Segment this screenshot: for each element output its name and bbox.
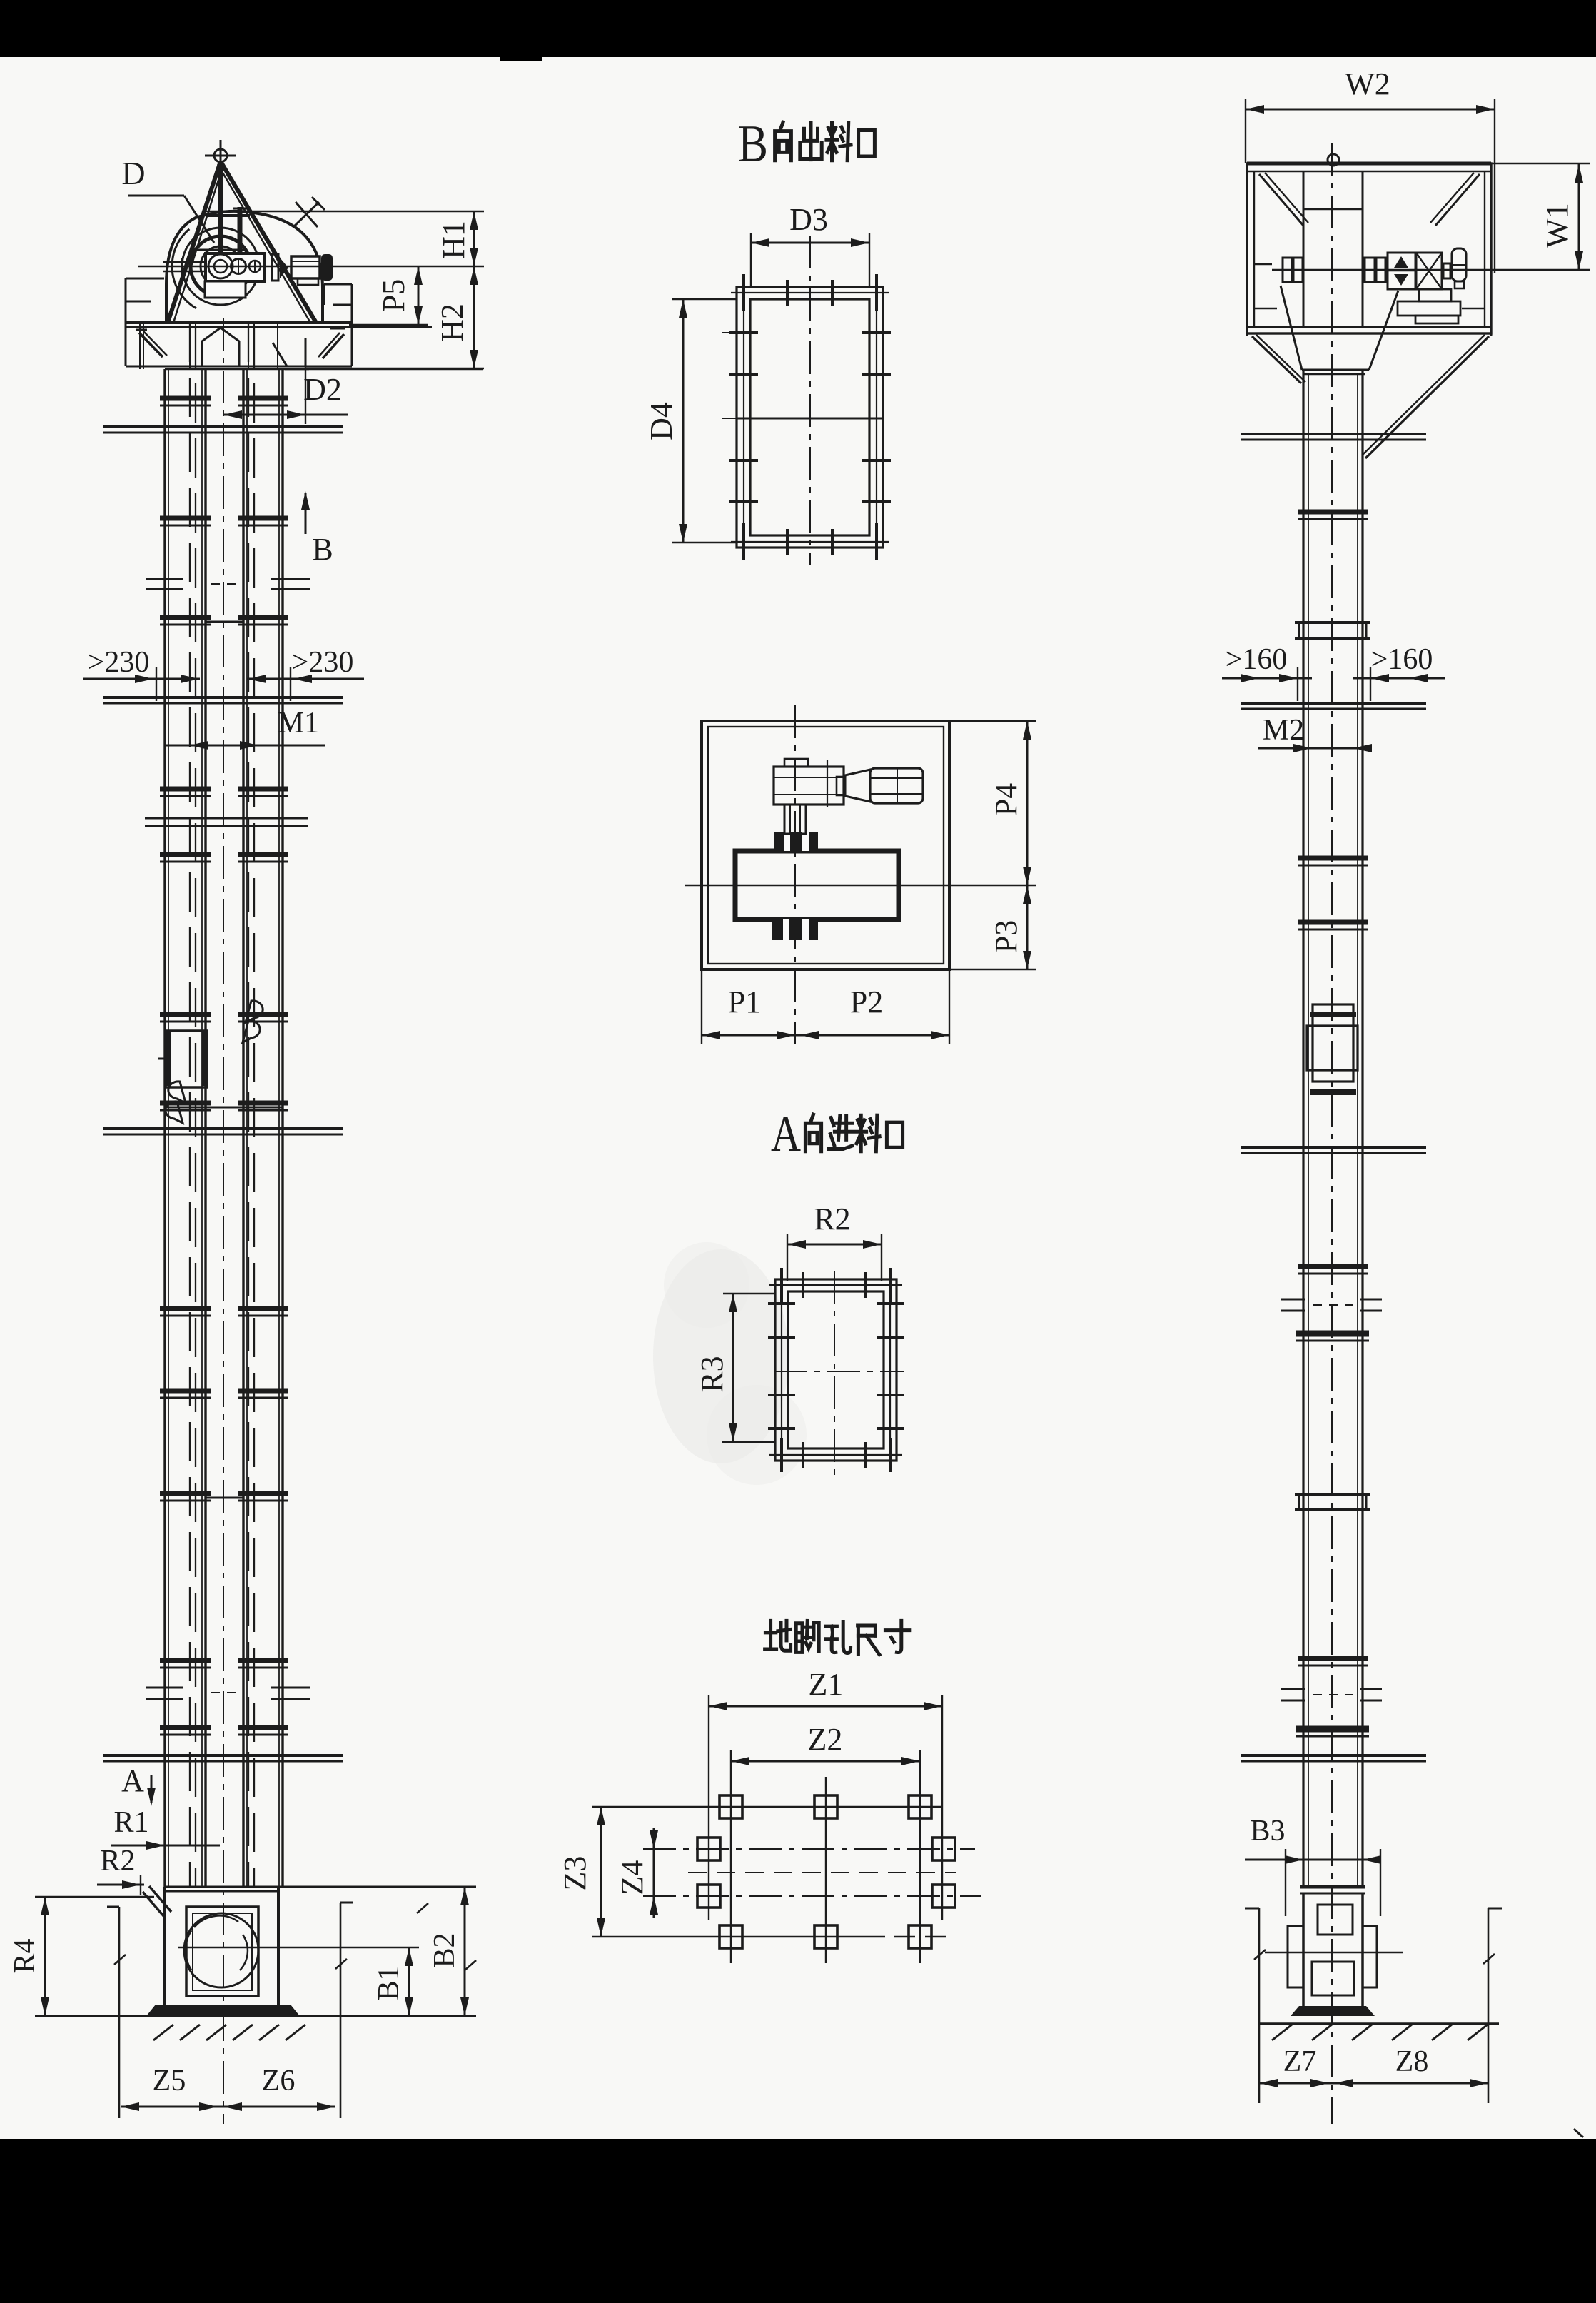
svg-text:P3: P3 <box>989 920 1024 953</box>
svg-text:P4: P4 <box>989 783 1024 816</box>
svg-text:Z1: Z1 <box>809 1667 844 1702</box>
svg-text:P2: P2 <box>850 984 883 1019</box>
svg-text:R2: R2 <box>100 1845 135 1878</box>
svg-text:D4: D4 <box>644 402 679 440</box>
svg-text:A: A <box>121 1763 144 1798</box>
svg-text:M2: M2 <box>1263 714 1304 747</box>
svg-text:B2: B2 <box>428 1932 461 1967</box>
svg-text:R4: R4 <box>9 1938 41 1973</box>
svg-text:D: D <box>121 155 145 191</box>
svg-text:R3: R3 <box>695 1356 729 1392</box>
svg-text:Z8: Z8 <box>1395 2045 1429 2078</box>
svg-text:R1: R1 <box>113 1806 148 1839</box>
svg-text:D2: D2 <box>303 372 342 407</box>
svg-text:H2: H2 <box>435 303 470 342</box>
svg-text:W2: W2 <box>1345 66 1390 101</box>
svg-text:Z2: Z2 <box>808 1722 843 1757</box>
svg-text:A: A <box>771 1105 801 1162</box>
svg-text:>160: >160 <box>1226 643 1288 676</box>
svg-text:>230: >230 <box>292 646 354 679</box>
svg-text:Z4: Z4 <box>615 1860 650 1895</box>
svg-text:B: B <box>312 532 333 567</box>
svg-text:B1: B1 <box>373 1965 405 2000</box>
svg-text:W1: W1 <box>1540 203 1575 248</box>
svg-text:H1: H1 <box>436 221 471 259</box>
svg-text:>160: >160 <box>1371 643 1433 676</box>
svg-text:P5: P5 <box>376 279 411 312</box>
svg-text:>230: >230 <box>88 646 150 679</box>
svg-text:B: B <box>738 115 768 173</box>
svg-text:Z5: Z5 <box>153 2065 186 2097</box>
svg-text:M1: M1 <box>278 707 319 740</box>
svg-text:R2: R2 <box>814 1201 850 1236</box>
svg-text:P1: P1 <box>728 984 761 1019</box>
svg-text:Z6: Z6 <box>262 2065 296 2097</box>
svg-text:Z7: Z7 <box>1283 2045 1317 2078</box>
svg-text:Z3: Z3 <box>557 1856 592 1891</box>
svg-text:B3: B3 <box>1250 1815 1285 1848</box>
svg-text:D3: D3 <box>789 202 828 237</box>
